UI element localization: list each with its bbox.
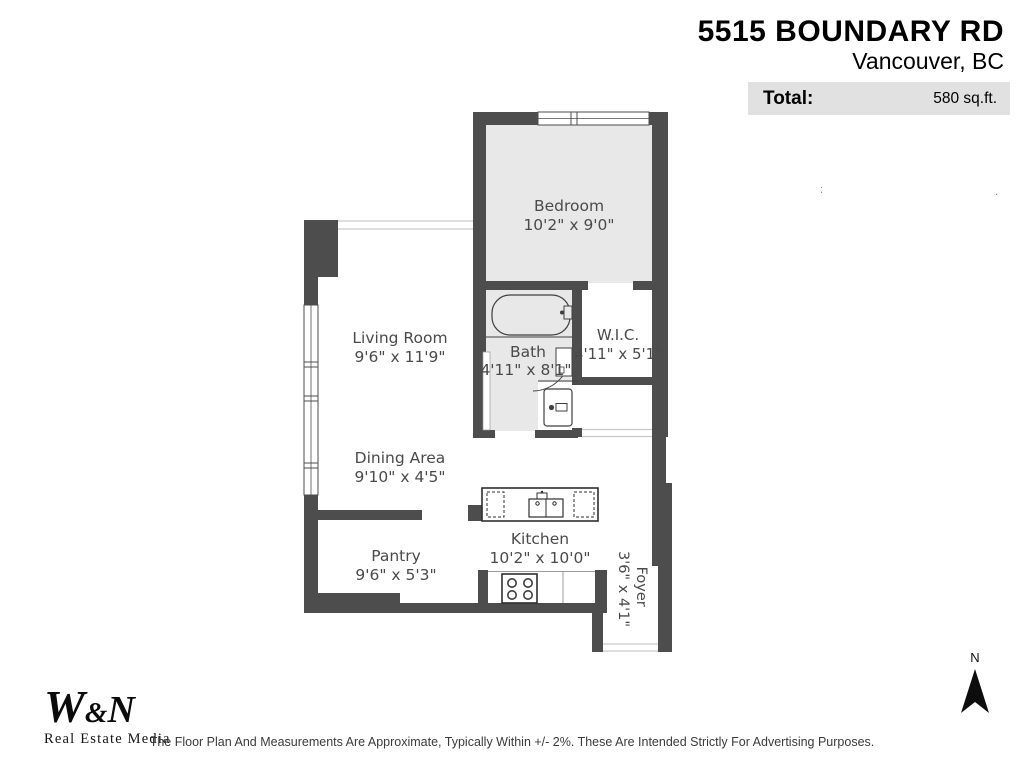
foyer-dims: 3'6" x 4'1" <box>615 551 631 627</box>
wall-right-upper <box>652 112 668 437</box>
logo-letter-n: N <box>107 689 134 731</box>
wic-dims: 4'11" x 5'1" <box>574 345 662 363</box>
wall-wic-bottom <box>572 377 668 385</box>
living-room-window <box>304 305 318 495</box>
wic-name: W.I.C. <box>597 326 639 344</box>
dining-area-dims: 9'10" x 4'5" <box>354 468 445 486</box>
compass: N <box>950 650 1000 722</box>
kitchen-name: Kitchen <box>511 530 569 548</box>
bedroom-dims: 10'2" x 9'0" <box>523 216 614 234</box>
stove-icon <box>502 574 537 603</box>
pantry-dims: 9'6" x 5'3" <box>355 566 436 584</box>
north-arrow-icon <box>950 665 1000 717</box>
wall-right-seg3 <box>652 483 672 566</box>
living-room-dims: 9'6" x 11'9" <box>354 348 445 366</box>
kitchen-island <box>482 488 598 521</box>
kitchen-dims: 10'2" x 10'0" <box>490 549 591 567</box>
logo-letter-w: W <box>44 681 85 732</box>
bath-name: Bath <box>510 343 546 361</box>
wall-right-seg5 <box>658 612 672 652</box>
bedroom-window <box>538 112 649 125</box>
floor-plan: Bedroom 10'2" x 9'0" Living Room 9'6" x … <box>0 0 1024 768</box>
wall-bedroom-bottom-left <box>473 281 588 290</box>
wall-bath-bottom-corner <box>486 430 495 438</box>
pantry-name: Pantry <box>371 547 421 565</box>
wall-corner-block <box>304 220 338 277</box>
logo-ampersand: & <box>85 697 108 729</box>
wall-dining-pantry-divider <box>315 510 422 520</box>
wall-foyer-left <box>592 608 603 652</box>
wall-stove-stub <box>478 570 488 603</box>
foyer-label: Foyer 3'6" x 4'1" <box>615 551 649 627</box>
wall-right-seg2 <box>652 437 666 483</box>
wall-left-above-window <box>304 277 318 305</box>
bath-dims: 4'11" x 8'1" <box>480 361 571 379</box>
bathtub-icon <box>486 295 572 337</box>
stove-counter <box>488 572 595 604</box>
wall-bottom-kitchen <box>398 603 607 613</box>
wall-right-seg4 <box>658 566 672 612</box>
bedroom-name: Bedroom <box>534 197 604 215</box>
dining-area-name: Dining Area <box>355 449 446 467</box>
disclaimer-text: The Floor Plan And Measurements Are Appr… <box>0 735 1024 749</box>
wall-bath-wic-divider <box>572 281 582 385</box>
wall-bedroom-bottom-right <box>633 281 652 290</box>
compass-label: N <box>950 650 1000 665</box>
living-room-name: Living Room <box>352 329 447 347</box>
wall-bottom-pantry <box>304 593 400 613</box>
wall-laundry-bottom <box>535 430 578 438</box>
logo-mark: W&N <box>44 684 171 730</box>
foyer-name: Foyer <box>633 567 649 607</box>
